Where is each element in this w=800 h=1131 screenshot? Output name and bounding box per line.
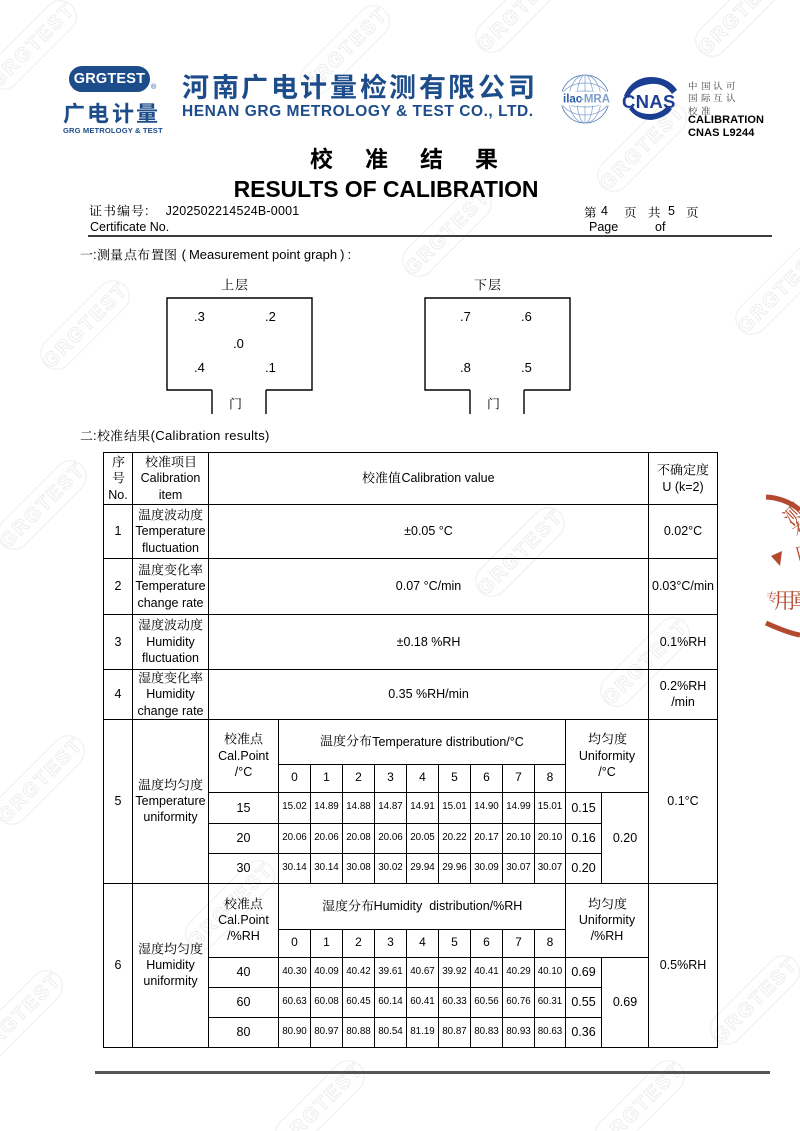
svg-text:-MRA: -MRA xyxy=(580,94,610,106)
svg-text:CNAS: CNAS xyxy=(622,91,676,112)
